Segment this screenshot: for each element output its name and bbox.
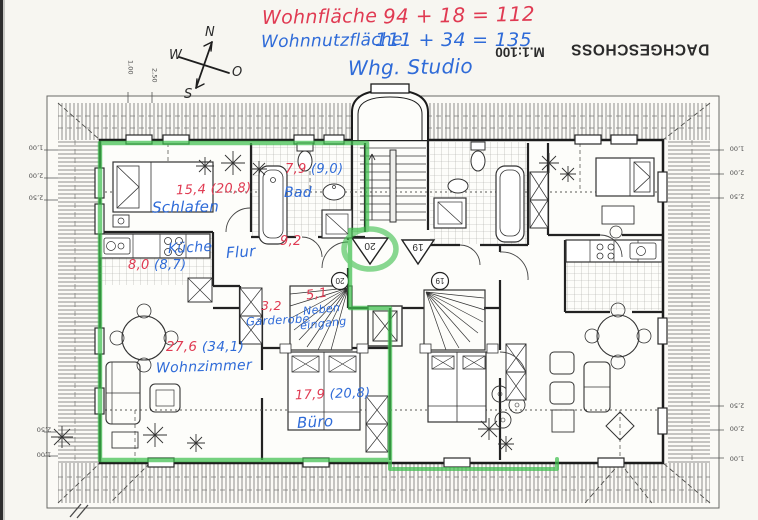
wohnzimmer-area-red: 27,6 — [166, 341, 197, 355]
garderobe-area: 3,2 — [261, 300, 282, 313]
stairwell-arch — [352, 84, 428, 140]
annotation-wohnflaeche-formula: 94 + 18 = 112 — [383, 4, 535, 27]
kitchen-counter-right — [566, 240, 662, 262]
schlafen-area: 15,4 (20,8) — [176, 182, 252, 198]
dim-top-left-1: 1,00 — [127, 57, 134, 77]
dim-left-top-1: 1,00 — [26, 144, 46, 151]
flur-label: Flur — [226, 244, 257, 261]
unit-19-circle-number: 19 — [431, 276, 449, 284]
bad-area: 7,9 (9,0) — [285, 163, 343, 176]
compass-north-label: N — [205, 26, 215, 39]
drawing-title: DACHGESCHOSS — [570, 41, 710, 57]
dim-top-left-2: 2,50 — [151, 65, 158, 85]
unit-20-circle-number: 20 — [331, 276, 349, 284]
compass-icon — [179, 42, 229, 88]
annotation-wohnflaeche-label: Wohnfläche — [262, 7, 378, 28]
dim-left-bottom-1: 2,50 — [34, 426, 54, 433]
bathtub-left — [259, 166, 287, 244]
dim-right-bottom-1: 2,50 — [727, 402, 747, 409]
kueche-area: 8,0 (8,7) — [128, 259, 186, 272]
dim-right-bottom-3: 1,00 — [727, 455, 747, 462]
kueche-area-red: 8,0 — [128, 259, 150, 272]
dim-right-top-2: 2,00 — [727, 169, 747, 176]
scanned-floor-plan-page: Wohnfläche 94 + 18 = 112 Wohnnutzfläche … — [0, 0, 758, 520]
wohnzimmer-area-blue: (34,1) — [202, 341, 244, 355]
nebeneingang-area: 5,1 — [305, 287, 328, 303]
drawing-scale: M.1:100 — [487, 45, 553, 59]
shower-left — [322, 210, 352, 238]
buero-area-blue: (20,8) — [329, 387, 370, 401]
buero-area: 17,9 (20,8) — [295, 387, 371, 403]
dim-left-bottom-2: 1,00 — [34, 451, 54, 458]
kueche-area-blue: (8,7) — [154, 259, 186, 272]
dim-left-top-3: 2,50 — [26, 194, 46, 201]
wohnzimmer-area: 27,6 (34,1) — [166, 341, 244, 355]
buero-area-red: 17,9 — [295, 388, 326, 402]
bad-area-red: 7,9 — [285, 163, 307, 176]
unit-19-triangle-number: 19 — [407, 241, 429, 251]
compass-east-label: O — [232, 66, 243, 79]
wohnzimmer-label: Wohnzimmer — [156, 358, 252, 375]
sink-left — [323, 184, 345, 200]
dim-left-top-2: 2,00 — [26, 172, 46, 179]
sink-right — [448, 179, 468, 193]
compass-west-label: W — [169, 49, 182, 62]
bathtub-right — [496, 166, 524, 242]
dim-right-top-3: 2,50 — [727, 193, 747, 200]
bad-label: Bad — [284, 186, 312, 200]
scan-edge — [0, 0, 5, 520]
dim-right-top-1: 1,00 — [727, 145, 747, 152]
flur-area: 9,2 — [280, 235, 302, 248]
schlafen-label: Schlafen — [152, 199, 219, 215]
double-bed-center — [420, 344, 498, 422]
buero-label: Büro — [297, 414, 334, 431]
shower-right — [434, 198, 466, 228]
unit-20-triangle-number: 20 — [359, 240, 381, 250]
kueche-label: Küche — [168, 240, 213, 256]
dim-right-bottom-2: 2,00 — [727, 425, 747, 432]
annotation-apartment-note: Whg. Studio — [348, 56, 473, 78]
toilet-right — [471, 142, 485, 171]
bad-area-blue: (9,0) — [311, 163, 343, 176]
compass-south-label: S — [184, 88, 193, 101]
